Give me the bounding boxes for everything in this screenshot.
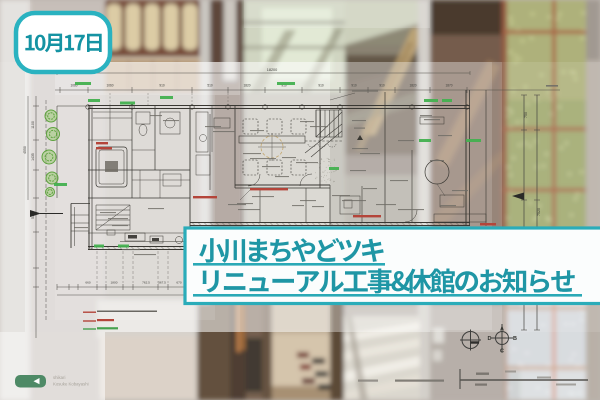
svg-text:670: 670	[176, 281, 181, 285]
svg-text:1100: 1100	[31, 121, 35, 129]
svg-text:750: 750	[524, 112, 528, 118]
svg-text:1820: 1820	[243, 84, 250, 88]
svg-text:1800: 1800	[111, 281, 118, 285]
svg-text:A: A	[500, 327, 504, 333]
svg-text:1870: 1870	[445, 84, 452, 88]
svg-text:D: D	[488, 336, 492, 342]
svg-text:18200: 18200	[267, 68, 278, 72]
svg-text:1435: 1435	[31, 153, 35, 161]
svg-text:1060: 1060	[106, 84, 113, 88]
svg-text:Kosuke Kobayashi: Kosuke Kobayashi	[53, 382, 89, 387]
svg-text:910: 910	[351, 84, 357, 88]
svg-text:910: 910	[379, 84, 385, 88]
svg-text:B: B	[513, 336, 517, 342]
svg-text:910: 910	[159, 84, 165, 88]
svg-text:910: 910	[318, 84, 324, 88]
svg-text:shikari: shikari	[53, 375, 65, 380]
svg-text:367.5: 367.5	[158, 281, 166, 285]
svg-text:762.5: 762.5	[142, 281, 150, 285]
svg-text:C: C	[500, 349, 504, 355]
svg-text:7520: 7520	[537, 208, 541, 216]
svg-text:4550: 4550	[23, 146, 27, 154]
svg-text:660: 660	[85, 281, 90, 285]
svg-text:510: 510	[207, 84, 213, 88]
svg-text:1820: 1820	[409, 84, 416, 88]
